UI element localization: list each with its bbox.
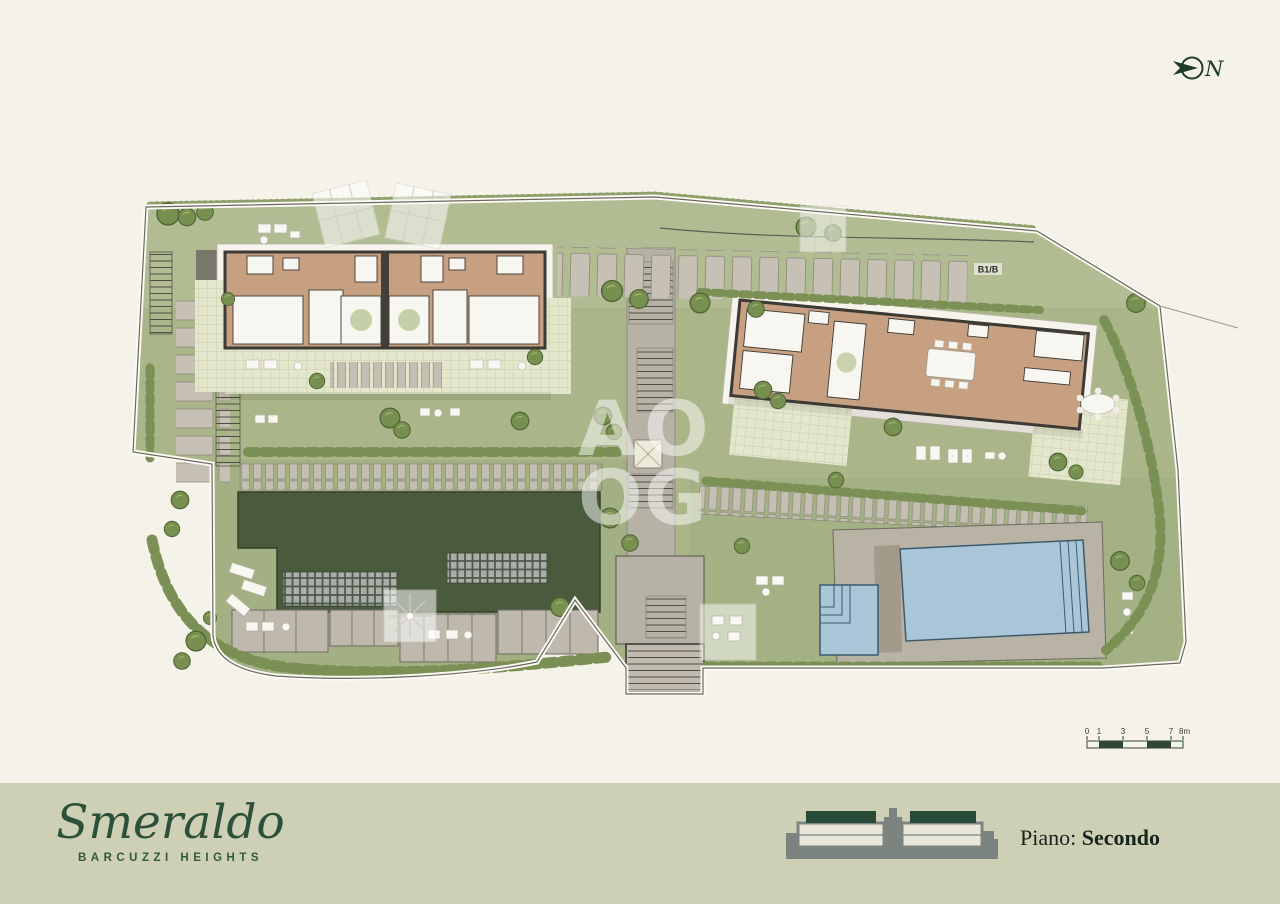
left-garden	[226, 492, 600, 662]
svg-text:3: 3	[1121, 727, 1126, 736]
north-arrow-icon: N	[1173, 57, 1224, 81]
svg-text:O: O	[578, 453, 643, 542]
brand-name: Smeraldo	[38, 797, 303, 849]
small-pool	[820, 585, 878, 655]
highlighted-floor-left	[806, 811, 876, 823]
floor-indicator: Piano: Secondo	[786, 801, 1160, 861]
footer-band: Smeraldo BARCUZZI HEIGHTS Piano: Secondo	[0, 783, 1280, 904]
svg-text:B1/B: B1/B	[978, 265, 999, 275]
solar-panel-array	[283, 572, 397, 606]
svg-text:G: G	[644, 453, 706, 542]
brand-logo: Smeraldo BARCUZZI HEIGHTS	[38, 797, 303, 864]
svg-text:7: 7	[1169, 727, 1174, 736]
unit-label: B1/B	[974, 263, 1002, 275]
building-elevation-icon	[786, 801, 998, 861]
floor-label: Piano:	[1020, 825, 1076, 850]
site-plan-drawing: B1/B A O O G N 0 1 3 5 7 8m	[0, 0, 1280, 783]
plan-sheet: { "north": { "label": "N" }, "watermark"…	[0, 0, 1280, 904]
scale-bar: 0 1 3 5 7 8m	[1085, 727, 1191, 748]
deck-slats	[330, 362, 442, 388]
floor-text: Piano: Secondo	[1020, 825, 1160, 861]
left-building	[195, 244, 571, 400]
svg-text:0: 0	[1085, 727, 1090, 736]
garden-pergola	[700, 604, 756, 660]
agency-watermark: A O O G	[578, 384, 709, 542]
solar-panel-array	[447, 553, 547, 583]
brand-subtitle: BARCUZZI HEIGHTS	[38, 852, 303, 864]
umbrella-pergola	[384, 590, 436, 642]
floor-value: Secondo	[1082, 825, 1160, 850]
svg-text:1: 1	[1097, 727, 1102, 736]
svg-text:5: 5	[1145, 727, 1150, 736]
highlighted-floor-right	[910, 811, 976, 823]
svg-text:N: N	[1204, 57, 1224, 81]
svg-text:8m: 8m	[1179, 727, 1190, 736]
